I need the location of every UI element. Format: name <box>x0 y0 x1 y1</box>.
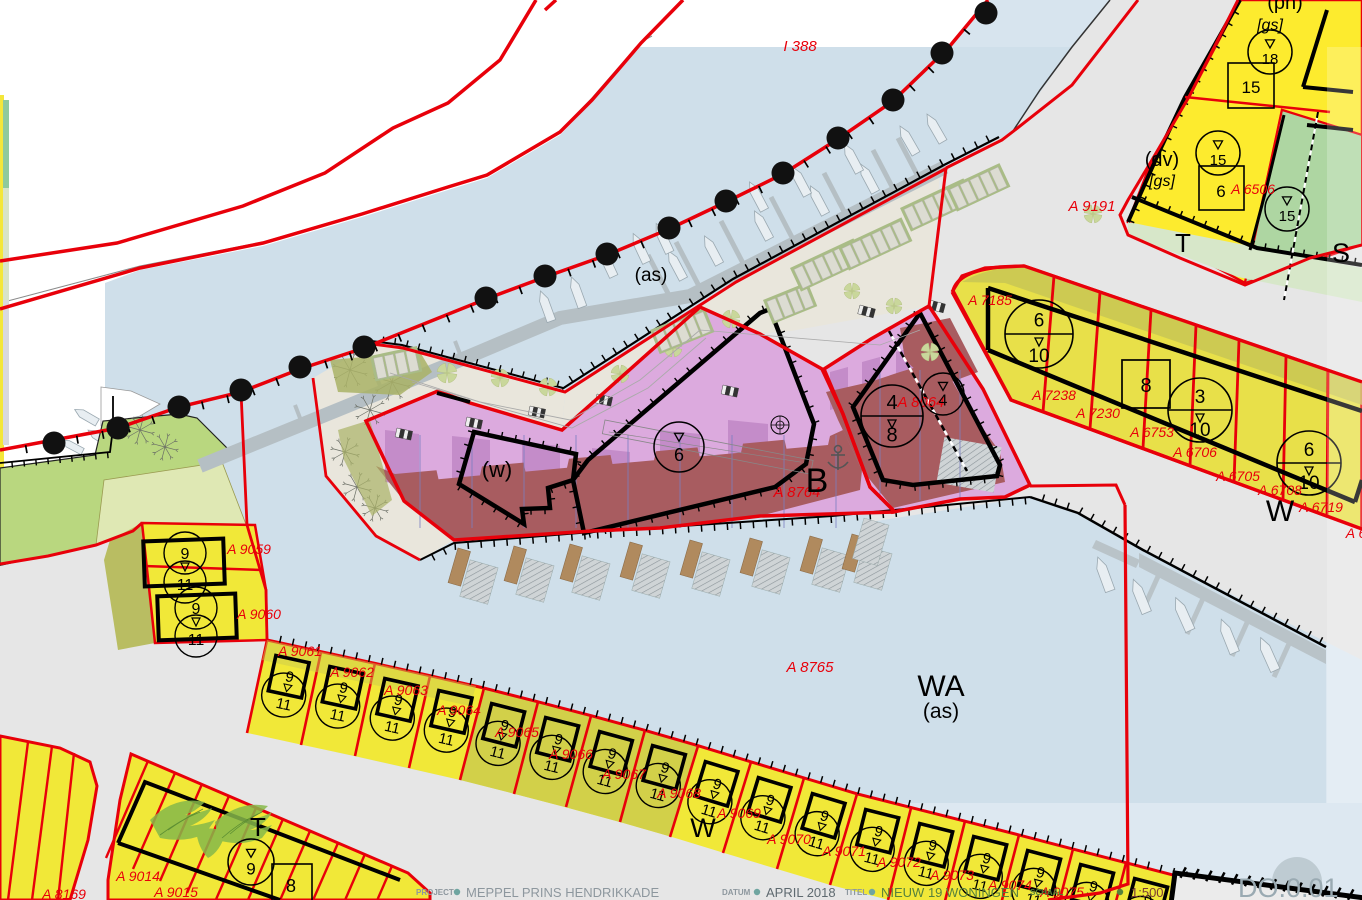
svg-text:8: 8 <box>286 876 296 896</box>
svg-text:15: 15 <box>1242 78 1261 97</box>
svg-text:A 9070: A 9070 <box>766 831 811 847</box>
svg-text:(w): (w) <box>482 457 513 482</box>
svg-text:APRIL 2018: APRIL 2018 <box>766 885 836 900</box>
svg-text:W: W <box>1266 495 1295 528</box>
svg-text:DO.0.01: DO.0.01 <box>1238 873 1339 900</box>
svg-text:DATUM: DATUM <box>722 888 751 897</box>
svg-text:A 7238: A 7238 <box>1031 387 1076 403</box>
svg-text:A 7185: A 7185 <box>967 292 1012 308</box>
svg-text:A 6705: A 6705 <box>1215 468 1260 484</box>
svg-text:6: 6 <box>674 445 684 465</box>
svg-text:A 9072: A 9072 <box>876 854 921 870</box>
svg-text:(dv): (dv) <box>1145 149 1179 171</box>
svg-text:B: B <box>806 462 829 500</box>
svg-text:T: T <box>1175 228 1191 258</box>
svg-text:A 9061: A 9061 <box>277 643 322 659</box>
svg-text:A 6753: A 6753 <box>1129 424 1174 440</box>
svg-text:TITEL: TITEL <box>845 888 867 897</box>
svg-text:11: 11 <box>188 632 205 649</box>
svg-text:A 9071: A 9071 <box>821 843 866 859</box>
svg-text:[gs]: [gs] <box>1148 173 1175 190</box>
svg-text:PROJECT: PROJECT <box>416 888 454 897</box>
svg-text:A 9067: A 9067 <box>601 766 647 782</box>
svg-text:9: 9 <box>181 546 190 563</box>
svg-text:A 8169: A 8169 <box>41 886 86 900</box>
svg-text:A 9068: A 9068 <box>656 785 701 801</box>
svg-text:A 6506: A 6506 <box>1230 181 1275 197</box>
svg-text:A 9069: A 9069 <box>716 805 761 821</box>
svg-text:A 9066: A 9066 <box>548 746 593 762</box>
svg-text:A 9191: A 9191 <box>1068 198 1116 215</box>
svg-text:A 9063: A 9063 <box>383 682 428 698</box>
svg-text:W: W <box>690 813 716 843</box>
svg-text:A 9064: A 9064 <box>436 702 481 718</box>
svg-text:A 6: A 6 <box>1345 525 1362 541</box>
svg-text:[gs]: [gs] <box>1256 17 1283 34</box>
svg-text:A 9060: A 9060 <box>236 606 281 622</box>
svg-text:I 388: I 388 <box>783 38 817 55</box>
svg-text:18: 18 <box>1262 51 1279 68</box>
svg-text:6: 6 <box>1304 440 1315 461</box>
svg-text:S: S <box>1332 238 1350 268</box>
svg-text:3: 3 <box>1195 387 1206 408</box>
svg-text:A 9059: A 9059 <box>226 541 271 557</box>
svg-text:10: 10 <box>1189 420 1210 441</box>
svg-text:(ph): (ph) <box>1267 0 1303 14</box>
svg-text:(as): (as) <box>923 700 959 723</box>
svg-text:11: 11 <box>177 577 194 594</box>
svg-text:1:500: 1:500 <box>1131 885 1164 900</box>
svg-text:A 6719: A 6719 <box>1298 499 1343 515</box>
svg-text:MEPPEL PRINS HENDRIKKADE: MEPPEL PRINS HENDRIKKADE <box>466 885 659 900</box>
svg-text:NIEUW 19 WONINGEN: NIEUW 19 WONINGEN <box>881 885 1019 900</box>
svg-text:WA: WA <box>917 670 964 703</box>
svg-text:A 6706: A 6706 <box>1172 444 1217 460</box>
svg-text:4: 4 <box>886 392 897 414</box>
svg-text:6: 6 <box>1216 182 1225 201</box>
svg-text:A 7230: A 7230 <box>1075 405 1120 421</box>
svg-text:4: 4 <box>939 393 948 410</box>
svg-text:9: 9 <box>246 860 255 879</box>
svg-text:6: 6 <box>1034 311 1045 332</box>
svg-text:A 9073: A 9073 <box>929 867 974 883</box>
svg-text:A 9014: A 9014 <box>115 868 160 884</box>
svg-text:SCHAAL: SCHAAL <box>1030 888 1063 897</box>
svg-text:8: 8 <box>1140 375 1151 397</box>
svg-text:A 9065: A 9065 <box>494 724 539 740</box>
svg-text:8: 8 <box>886 424 897 446</box>
svg-text:(as): (as) <box>635 265 668 286</box>
svg-text:9: 9 <box>192 601 201 618</box>
svg-text:15: 15 <box>1279 208 1296 225</box>
svg-text:A 8765: A 8765 <box>786 659 835 676</box>
svg-text:A 9062: A 9062 <box>329 664 374 680</box>
svg-text:A 9015: A 9015 <box>153 884 198 900</box>
svg-text:T: T <box>250 812 266 842</box>
svg-text:10: 10 <box>1028 346 1049 367</box>
